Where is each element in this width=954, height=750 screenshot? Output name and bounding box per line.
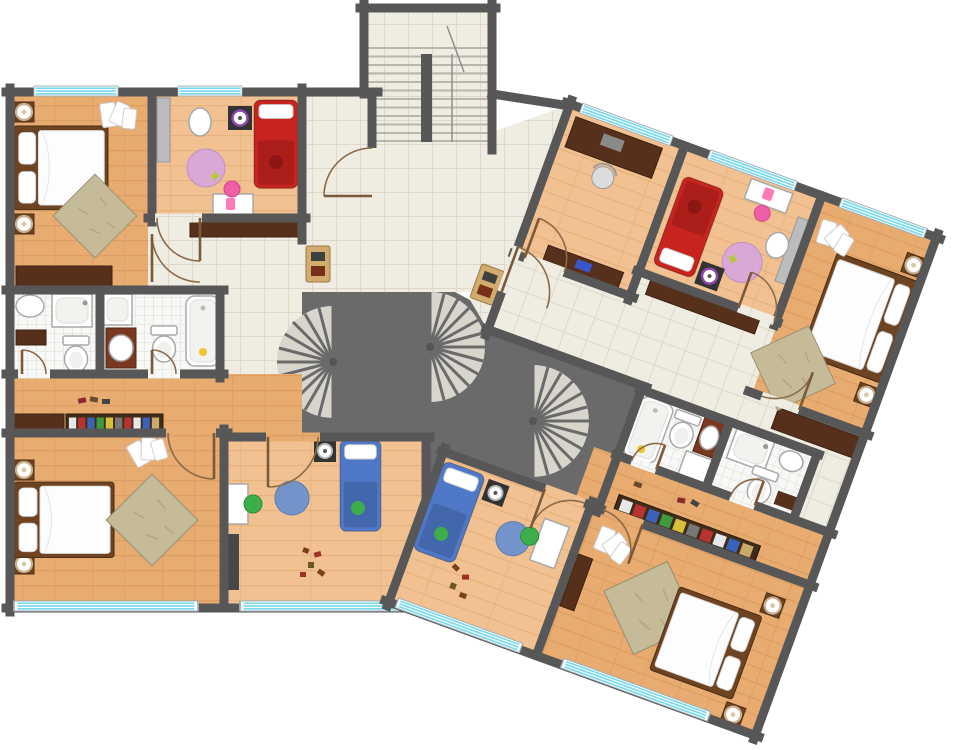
dresser bbox=[16, 266, 112, 286]
chair-green bbox=[244, 495, 262, 513]
console-table bbox=[306, 246, 330, 282]
toilet bbox=[63, 336, 89, 372]
desk-toy-pink bbox=[226, 198, 235, 210]
sideboard bbox=[190, 222, 302, 237]
window bbox=[34, 86, 118, 96]
floor-plan bbox=[0, 0, 954, 750]
window bbox=[14, 601, 198, 611]
nightstand-lamp bbox=[14, 214, 34, 234]
chair-pink bbox=[224, 181, 240, 197]
nightstand-lamp bbox=[14, 102, 34, 122]
double-bed bbox=[14, 482, 114, 558]
main-stairwell bbox=[366, 8, 490, 148]
shower-tray bbox=[107, 298, 128, 321]
rubber-duck bbox=[199, 348, 207, 356]
bath-cabinet bbox=[16, 330, 46, 345]
bed-toy-green bbox=[351, 501, 365, 515]
gray-wardrobe bbox=[157, 98, 170, 162]
floor-plan-svg bbox=[0, 0, 954, 750]
toilet bbox=[151, 326, 177, 362]
bed-flower-detail bbox=[269, 155, 283, 169]
stair-divider-wall bbox=[421, 54, 432, 142]
nightstand-lamp bbox=[14, 460, 34, 480]
single-bed-blue bbox=[340, 440, 381, 531]
window bbox=[178, 86, 242, 96]
round-rug-pink bbox=[187, 149, 225, 187]
vanity-sink bbox=[109, 335, 133, 361]
corner-sink bbox=[16, 295, 44, 317]
single-bed-red bbox=[254, 100, 298, 188]
laundry-basket bbox=[189, 108, 211, 136]
toy-speaker bbox=[228, 106, 252, 130]
shower bbox=[52, 294, 92, 327]
